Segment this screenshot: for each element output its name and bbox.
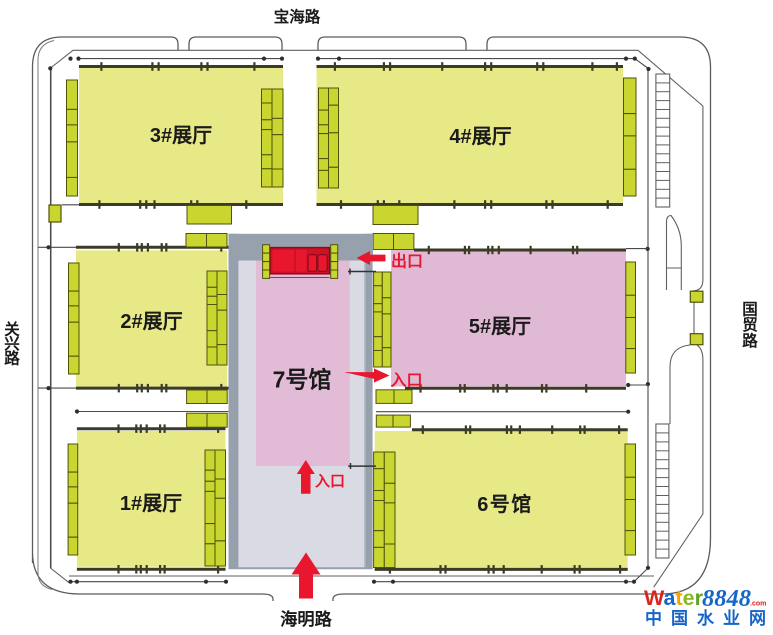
svg-text:5#展厅: 5#展厅 [469,316,531,338]
svg-text:国贸路: 国贸路 [742,301,758,350]
svg-text:入口: 入口 [390,372,422,390]
svg-text:海明路: 海明路 [280,609,332,629]
svg-text:2#展厅: 2#展厅 [120,311,182,333]
svg-text:7号馆: 7号馆 [273,367,332,393]
svg-text:4#展厅: 4#展厅 [449,126,511,148]
svg-text:Water: Water [644,586,704,610]
svg-text:宝海路: 宝海路 [274,7,321,26]
svg-text:1#展厅: 1#展厅 [120,493,182,515]
svg-text:3#展厅: 3#展厅 [150,125,212,147]
svg-text:8848: 8848 [702,585,751,612]
svg-text:出口: 出口 [391,252,423,271]
svg-text:关兴路: 关兴路 [4,320,20,368]
svg-text:6号馆: 6号馆 [477,492,533,516]
svg-text:.com: .com [750,601,766,608]
svg-text:入口: 入口 [315,473,345,490]
svg-text:中国水业网: 中国水业网 [645,608,773,628]
